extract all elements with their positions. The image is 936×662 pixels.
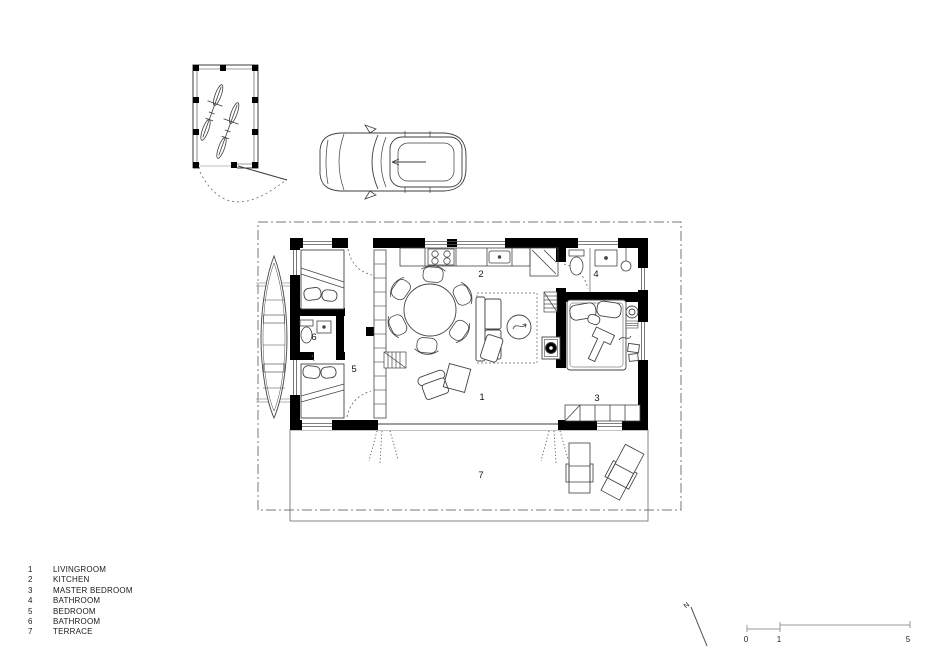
legend-row: 3 MASTER BEDROOM: [28, 586, 133, 596]
legend-number: 4: [28, 596, 53, 606]
legend-row: 7 TERRACE: [28, 627, 133, 637]
car-mirror: [365, 125, 376, 133]
legend-number: 2: [28, 575, 53, 585]
legend-number: 3: [28, 586, 53, 596]
bed: [301, 250, 344, 309]
car-direction-arrow: [392, 159, 426, 165]
coffee-table: [507, 315, 531, 339]
legend-label: TERRACE: [53, 627, 93, 637]
nightstand: [629, 353, 639, 361]
legend-number: 1: [28, 565, 53, 575]
house: 1 2 3 4 5 6 7: [290, 238, 648, 481]
room-label-livingroom: 1: [479, 392, 484, 403]
scale-tick-1: 1: [777, 635, 782, 644]
north-label: N: [683, 602, 691, 611]
room-label-terrace: 7: [478, 470, 483, 481]
bike-shed: [193, 65, 287, 202]
stool: [626, 306, 638, 318]
room-label-master-bedroom: 3: [594, 393, 599, 404]
folding-door-swing-marks: [369, 431, 568, 463]
legend-row: 6 BATHROOM: [28, 617, 133, 627]
legend-row: 1 LIVINGROOM: [28, 565, 133, 575]
legend-number: 6: [28, 617, 53, 627]
car-mirror: [365, 191, 376, 199]
legend-label: MASTER BEDROOM: [53, 586, 133, 596]
car-icon: [320, 125, 466, 199]
bicycle-icon: [194, 82, 229, 143]
scale-bar: 0 1 5: [744, 621, 911, 644]
room-label-bathroom: 4: [593, 269, 598, 280]
legend-row: 4 BATHROOM: [28, 596, 133, 606]
wardrobe: [565, 405, 640, 421]
room-legend: 1 LIVINGROOM 2 KITCHEN 3 MASTER BEDROOM …: [28, 565, 133, 638]
sink-icon: [317, 321, 331, 333]
legend-label: BATHROOM: [53, 596, 100, 606]
canoe-icon: [256, 256, 290, 418]
pillow: [321, 289, 337, 302]
loft-ladder: [384, 352, 406, 368]
pillow: [302, 365, 320, 379]
legend-number: 5: [28, 607, 53, 617]
bicycle-icon: [210, 100, 245, 161]
shelving-unit: [374, 250, 386, 418]
shed-posts: [193, 65, 258, 168]
pillow: [321, 366, 337, 378]
shed-door-leaf: [238, 166, 287, 180]
legend-label: LIVINGROOM: [53, 565, 106, 575]
scale-tick-5: 5: [906, 635, 911, 644]
legend-label: BATHROOM: [53, 617, 100, 627]
wood-stove: [542, 337, 560, 359]
mat: [626, 321, 638, 328]
terrace: [290, 430, 648, 521]
toilet-icon: [569, 250, 584, 275]
legend-row: 5 BEDROOM: [28, 607, 133, 617]
north-arrow: N: [683, 602, 707, 646]
legend-label: BEDROOM: [53, 607, 96, 617]
room-label-bathroom2: 6: [311, 332, 316, 343]
pillow: [596, 300, 622, 318]
room-label-bedroom: 5: [351, 364, 356, 375]
loft-ladder: [544, 292, 557, 312]
sofa: [476, 297, 504, 363]
legend-label: KITCHEN: [53, 575, 90, 585]
room-label-kitchen: 2: [478, 269, 483, 280]
lounger: [598, 443, 646, 502]
sink-icon: [595, 250, 617, 266]
bed: [301, 364, 344, 418]
pillow: [303, 287, 322, 301]
scale-tick-0: 0: [744, 635, 749, 644]
legend-row: 2 KITCHEN: [28, 575, 133, 585]
lounger: [566, 443, 593, 493]
nightstand: [627, 343, 639, 352]
legend-number: 7: [28, 627, 53, 637]
floor-plan-drawing: 1 2 3 4 5 6 7 N 0 1 5: [0, 0, 936, 662]
